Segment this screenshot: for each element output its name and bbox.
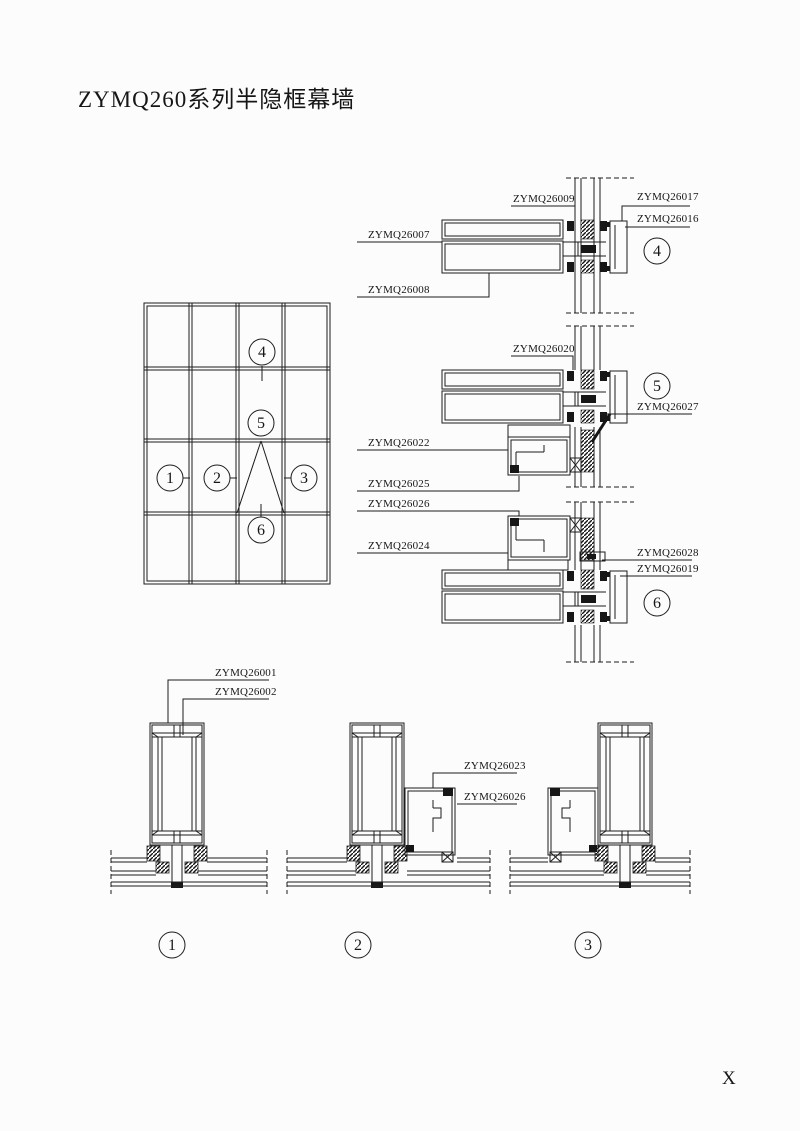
part-label: ZYMQ26027 bbox=[637, 401, 699, 413]
elevation-callout-2: 2 bbox=[204, 465, 230, 491]
glass-segment bbox=[575, 502, 600, 570]
section-callout-5: 5 bbox=[644, 373, 670, 399]
callout-number: 3 bbox=[300, 470, 308, 487]
elevation-callout-1: 1 bbox=[157, 465, 183, 491]
detail-section-4: ZYMQ26009 ZYMQ26017 ZYMQ26016 ZYMQ26007 … bbox=[357, 191, 699, 297]
part-label: ZYMQ26001 bbox=[215, 667, 277, 679]
detail-plan-1: ZYMQ26001 ZYMQ26002 bbox=[111, 667, 277, 894]
callout-number: 5 bbox=[257, 415, 265, 432]
part-label: ZYMQ26026 bbox=[368, 498, 430, 510]
section-callout-6: 6 bbox=[644, 590, 670, 616]
section-callout-4: 4 bbox=[644, 238, 670, 264]
window-opening-symbol bbox=[237, 441, 284, 513]
elevation-callout-5: 5 bbox=[248, 410, 274, 436]
callout-number: 6 bbox=[653, 595, 661, 612]
callout-number: 4 bbox=[653, 243, 661, 260]
part-label: ZYMQ26024 bbox=[368, 540, 430, 552]
elevation-grid: 1 2 3 4 5 6 bbox=[144, 303, 330, 584]
part-label: ZYMQ26017 bbox=[637, 191, 699, 203]
callout-number: 1 bbox=[168, 937, 176, 954]
callout-number: 6 bbox=[257, 522, 265, 539]
part-label: ZYMQ26009 bbox=[513, 193, 575, 205]
part-label: ZYMQ26002 bbox=[215, 686, 277, 698]
detail-section-6: ZYMQ26024 ZYMQ26028 ZYMQ26019 6 bbox=[357, 516, 699, 623]
callout-number: 2 bbox=[213, 470, 221, 487]
sheet-mark: X bbox=[722, 1068, 736, 1089]
sash-plan-mirrored bbox=[548, 788, 598, 862]
drawing-sheet: ZYMQ260系列半隐框幕墙 1 2 3 bbox=[0, 0, 800, 1131]
detail-plan-3 bbox=[510, 723, 690, 894]
callout-number: 2 bbox=[354, 937, 362, 954]
detail-6-labels: ZYMQ26024 ZYMQ26028 ZYMQ26019 bbox=[357, 540, 699, 576]
detail-2-labels: ZYMQ26023 ZYMQ26026 bbox=[433, 760, 526, 804]
sash-profile bbox=[508, 516, 581, 560]
plan-callout-1: 1 bbox=[159, 932, 185, 958]
part-label: ZYMQ26008 bbox=[368, 284, 430, 296]
plan-callout-3: 3 bbox=[575, 932, 601, 958]
page-title: ZYMQ260系列半隐框幕墙 bbox=[78, 87, 355, 112]
part-label: ZYMQ26016 bbox=[637, 213, 699, 225]
callout-number: 1 bbox=[166, 470, 174, 487]
sash-plan bbox=[405, 788, 455, 862]
part-label: ZYMQ26028 bbox=[637, 547, 699, 559]
elevation-callout-3: 3 bbox=[291, 465, 317, 491]
callout-number: 3 bbox=[584, 937, 592, 954]
elevation-callout-6: 6 bbox=[248, 517, 274, 543]
detail-section-5: ZYMQ26020 ZYMQ26027 ZYMQ26022 ZYMQ26025 … bbox=[357, 343, 699, 516]
glass-segment bbox=[575, 326, 600, 370]
part-label: ZYMQ26022 bbox=[368, 437, 430, 449]
callout-number: 4 bbox=[258, 344, 266, 361]
plan-callout-2: 2 bbox=[345, 932, 371, 958]
elevation-callout-4: 4 bbox=[249, 339, 275, 365]
cad-drawing: ZYMQ260系列半隐框幕墙 1 2 3 bbox=[0, 0, 800, 1131]
frame-step bbox=[508, 425, 570, 437]
frame-step bbox=[508, 560, 568, 570]
part-label: ZYMQ26023 bbox=[464, 760, 526, 772]
part-label: ZYMQ26026 bbox=[464, 791, 526, 803]
detail-plan-2: ZYMQ26023 ZYMQ26026 bbox=[287, 723, 526, 894]
part-label: ZYMQ26020 bbox=[513, 343, 575, 355]
glass-segment bbox=[575, 625, 600, 662]
callout-number: 5 bbox=[653, 378, 661, 395]
detail-5-labels: ZYMQ26020 ZYMQ26027 ZYMQ26022 ZYMQ26025 … bbox=[357, 343, 699, 516]
part-label: ZYMQ26019 bbox=[637, 563, 699, 575]
part-label: ZYMQ26007 bbox=[368, 229, 430, 241]
part-label: ZYMQ26025 bbox=[368, 478, 430, 490]
sash-profile bbox=[508, 437, 581, 475]
